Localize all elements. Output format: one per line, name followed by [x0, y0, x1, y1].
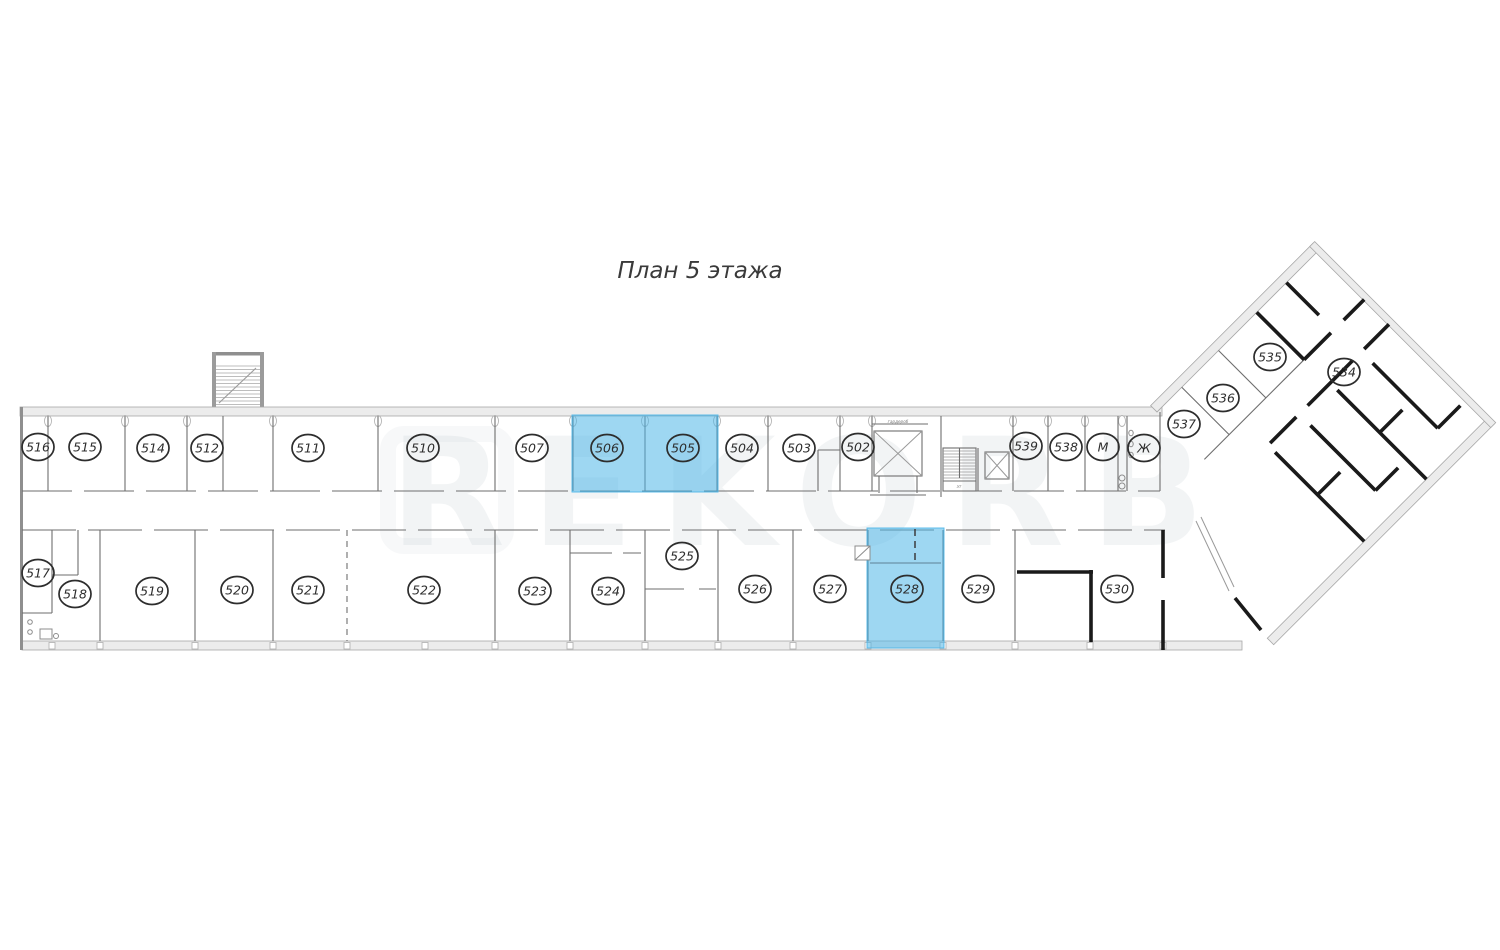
facade-tick — [49, 643, 55, 650]
room-badge-524[interactable]: 524 — [592, 578, 624, 605]
highlighted-room-506-505[interactable] — [572, 415, 718, 492]
floor-plan-canvas: REKORB План 5 этажа — [0, 0, 1500, 950]
room-badge-516[interactable]: 516 — [22, 434, 54, 461]
svg-text:М: М — [1098, 440, 1109, 455]
svg-text:523: 523 — [523, 584, 547, 599]
facade-tick — [492, 643, 498, 650]
facade-tick — [715, 643, 721, 650]
svg-text:Ж: Ж — [1136, 441, 1151, 456]
svg-text:524: 524 — [596, 584, 620, 599]
room-badge-515[interactable]: 515 — [69, 434, 101, 461]
floor-plan-page: REKORB План 5 этажа — [0, 0, 1500, 950]
fire-escape-stair-icon — [212, 352, 264, 408]
facade-tick — [790, 643, 796, 650]
svg-text:516: 516 — [26, 440, 50, 455]
svg-text:511: 511 — [296, 441, 320, 456]
svg-text:522: 522 — [412, 583, 436, 598]
facade-tick — [344, 643, 350, 650]
room-badge-519[interactable]: 519 — [136, 578, 168, 605]
room-badge-535[interactable]: 535 — [1254, 344, 1286, 371]
room-badge-517[interactable]: 517 — [22, 560, 54, 587]
svg-text:539: 539 — [1014, 439, 1038, 454]
room-badge-518[interactable]: 518 — [59, 581, 91, 608]
svg-text:504: 504 — [730, 441, 754, 456]
svg-text:536: 536 — [1211, 391, 1235, 406]
room-badge-534[interactable]: 534 — [1328, 359, 1360, 386]
svg-text:527: 527 — [818, 582, 842, 597]
room-badge-521[interactable]: 521 — [292, 577, 324, 604]
svg-text:506: 506 — [595, 441, 619, 456]
room-badge-511[interactable]: 511 — [292, 435, 324, 462]
facade-tick — [97, 643, 103, 650]
svg-text:510: 510 — [411, 441, 435, 456]
room-badge-523[interactable]: 523 — [519, 578, 551, 605]
stair-floor-mark: эт — [957, 484, 962, 489]
room-badge-512[interactable]: 512 — [191, 435, 223, 462]
room-badge-520[interactable]: 520 — [221, 577, 253, 604]
facade-tick — [642, 643, 648, 650]
room-badge-514[interactable]: 514 — [137, 435, 169, 462]
svg-text:529: 529 — [966, 582, 990, 597]
svg-text:528: 528 — [895, 582, 919, 597]
svg-text:520: 520 — [225, 583, 249, 598]
svg-text:517: 517 — [26, 566, 50, 581]
floor-plan-title: План 5 этажа — [617, 258, 782, 284]
svg-text:526: 526 — [743, 582, 767, 597]
svg-text:538: 538 — [1054, 440, 1078, 455]
svg-text:534: 534 — [1332, 365, 1356, 380]
bathroom-fixtures-517 — [28, 620, 59, 639]
facade-tick — [422, 643, 428, 650]
facade-tick — [1087, 643, 1093, 650]
svg-text:530: 530 — [1105, 582, 1129, 597]
facade-tick — [1119, 416, 1126, 427]
svg-text:502: 502 — [846, 440, 870, 455]
svg-text:503: 503 — [787, 441, 811, 456]
facade-tick — [567, 643, 573, 650]
svg-text:514: 514 — [141, 441, 165, 456]
svg-text:518: 518 — [63, 587, 87, 602]
facade-tick — [192, 643, 198, 650]
svg-text:521: 521 — [296, 583, 320, 598]
svg-text:535: 535 — [1258, 350, 1282, 365]
svg-text:519: 519 — [140, 584, 164, 599]
svg-text:537: 537 — [1172, 417, 1196, 432]
svg-text:515: 515 — [73, 440, 97, 455]
svg-text:507: 507 — [520, 441, 544, 456]
svg-text:512: 512 — [195, 441, 219, 456]
svg-text:505: 505 — [671, 441, 695, 456]
facade-tick — [1012, 643, 1018, 650]
svg-text:525: 525 — [670, 549, 694, 564]
facade-tick — [270, 643, 276, 650]
wardrobe-label: гардероб — [888, 419, 909, 424]
